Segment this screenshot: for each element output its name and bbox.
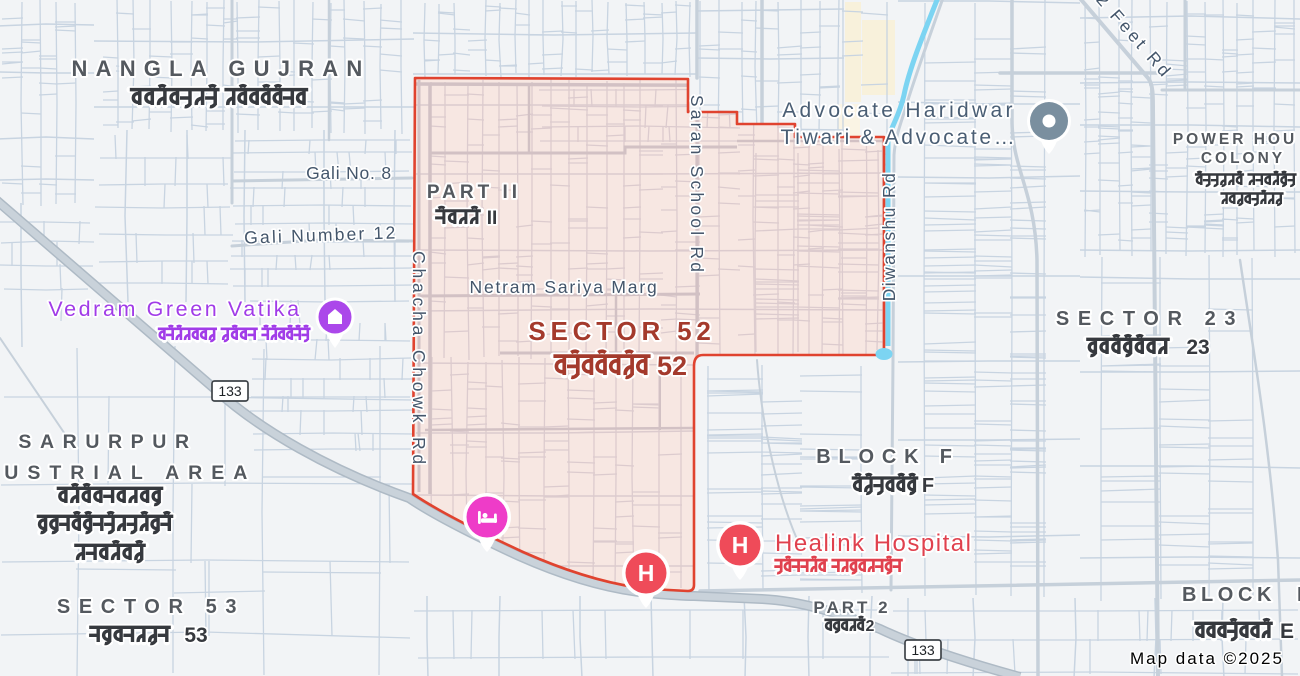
svg-text:BLOCK: BLOCK	[1182, 584, 1276, 606]
svg-text:53: 53	[184, 624, 207, 647]
svg-text:H: H	[638, 560, 655, 586]
svg-text:SECTOR 23: SECTOR 23	[1056, 308, 1244, 330]
svg-text:23: 23	[1186, 336, 1209, 359]
svg-text:Saran School Rd: Saran School Rd	[687, 95, 707, 275]
svg-text:Vedram Green Vatika: Vedram Green Vatika	[48, 297, 301, 321]
svg-text:PART II: PART II	[427, 182, 521, 203]
svg-text:POWER HOU: POWER HOU	[1173, 131, 1297, 148]
svg-text:133: 133	[218, 383, 242, 399]
svg-text:INDUSTRIAL AREA: INDUSTRIAL AREA	[0, 462, 256, 484]
svg-text:Gali No. 8: Gali No. 8	[306, 163, 392, 183]
svg-text:Healink Hospital: Healink Hospital	[775, 530, 972, 557]
svg-text:COLONY: COLONY	[1201, 150, 1285, 167]
svg-text:PART 2: PART 2	[813, 598, 890, 617]
svg-text:H: H	[732, 532, 749, 558]
svg-text:Chacha Chowk Rd: Chacha Chowk Rd	[409, 251, 429, 469]
svg-text:Diwanshu Rd: Diwanshu Rd	[879, 171, 899, 301]
svg-text:II: II	[487, 208, 498, 229]
svg-text:52: 52	[657, 351, 687, 381]
svg-text:2: 2	[866, 618, 875, 635]
svg-text:Tiwari & Advocate…: Tiwari & Advocate…	[781, 126, 1018, 149]
svg-text:133: 133	[911, 642, 935, 658]
svg-text:SECTOR 53: SECTOR 53	[57, 596, 245, 618]
svg-text:F: F	[922, 475, 934, 497]
svg-text:Netram Sariya Marg: Netram Sariya Marg	[470, 277, 659, 297]
svg-text:SARURPUR: SARURPUR	[18, 431, 197, 453]
svg-text:Advocate Haridwar: Advocate Haridwar	[782, 99, 1016, 122]
svg-text:E: E	[1280, 620, 1294, 643]
svg-text:SECTOR 52: SECTOR 52	[528, 316, 715, 346]
svg-text:Map data ©2025: Map data ©2025	[1130, 649, 1284, 668]
svg-text:NANGLA GUJRAN: NANGLA GUJRAN	[72, 56, 371, 81]
svg-text:BLOCK F: BLOCK F	[816, 446, 959, 468]
